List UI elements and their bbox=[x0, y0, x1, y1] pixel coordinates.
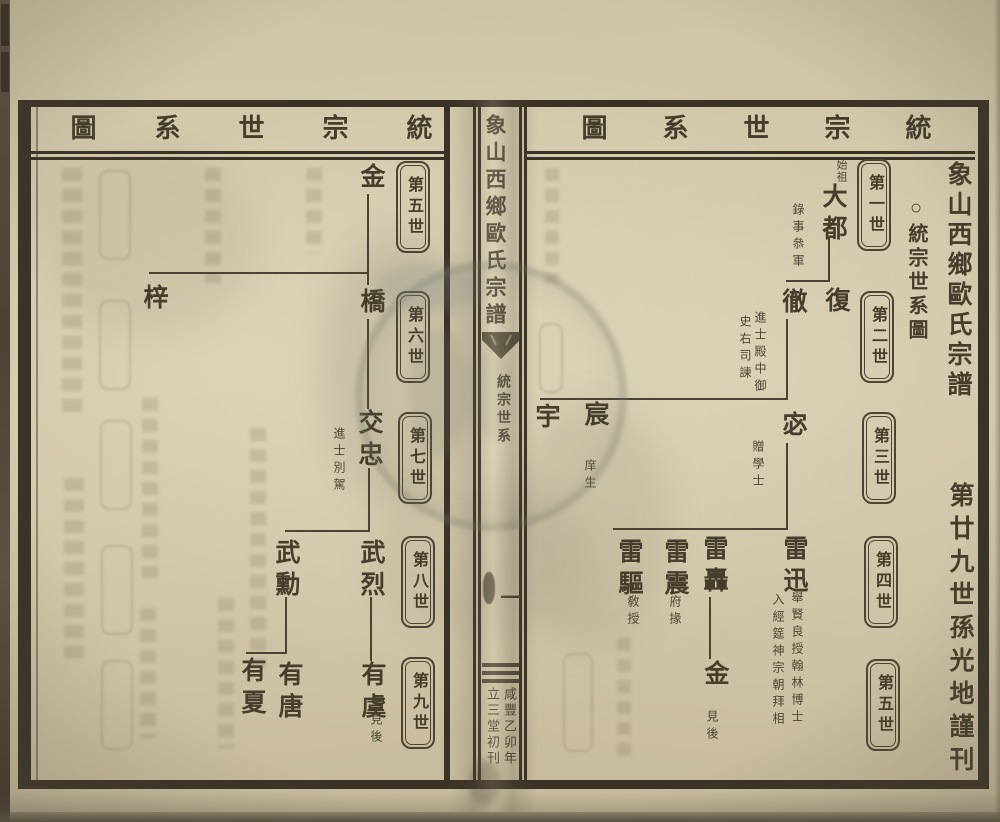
sibling-bracket bbox=[246, 652, 287, 654]
generation-badge-9-left: 第九世 bbox=[401, 657, 435, 749]
frame-right-border bbox=[978, 100, 989, 789]
generation-badge-5: 第五世 bbox=[866, 659, 900, 751]
photo-left-edge bbox=[0, 0, 10, 822]
person-name-wulie: 武烈 bbox=[352, 539, 388, 603]
photo-right-edge bbox=[994, 0, 1000, 822]
bleedthrough-text-ghost bbox=[218, 598, 234, 748]
fold-colophon-year: 咸豐乙卯年 bbox=[500, 687, 519, 767]
sibling-bracket bbox=[149, 272, 368, 274]
library-stamp-mark bbox=[375, 263, 485, 311]
bleedthrough-text-ghost bbox=[617, 638, 631, 763]
descent-line bbox=[285, 597, 287, 652]
photo-left-edge-clip bbox=[1, 52, 9, 92]
bleedthrough-text-ghost bbox=[142, 398, 158, 578]
fold-separator-bar bbox=[482, 671, 519, 675]
descent-line bbox=[786, 443, 788, 529]
person-name-jin-right: 金 bbox=[696, 660, 732, 692]
photo-bottom-shadow bbox=[0, 792, 1000, 812]
generation-badge-3: 第三世 bbox=[862, 412, 896, 504]
header-rule bbox=[26, 151, 445, 154]
frame-left-inner-line bbox=[36, 107, 38, 780]
person-note-leixun-b: 入經筵神宗朝拜相 bbox=[770, 593, 787, 729]
generation-badge-label: 第二世 bbox=[865, 306, 889, 369]
sibling-bracket bbox=[786, 280, 830, 282]
generation-badge-label: 第一世 bbox=[862, 174, 886, 237]
sibling-bracket bbox=[613, 528, 788, 530]
person-note-leizhen: 府掾 bbox=[667, 595, 684, 629]
frame-top-border bbox=[20, 100, 989, 107]
generation-badge-4: 第四世 bbox=[864, 536, 898, 628]
person-name-dadu: 大都 bbox=[814, 183, 850, 247]
bleedthrough-badge-ghost bbox=[100, 420, 132, 510]
descent-line bbox=[828, 236, 830, 281]
generation-badge-1: 第一世 bbox=[857, 159, 891, 251]
person-name-che: 徹 bbox=[774, 288, 810, 320]
photo-left-edge-clip bbox=[1, 4, 9, 46]
generation-badge-label: 第九世 bbox=[406, 672, 430, 735]
bleedthrough-badge-ghost bbox=[101, 545, 133, 635]
generation-badge-8-left: 第八世 bbox=[401, 536, 435, 628]
person-name-zi: 梓 bbox=[135, 284, 171, 316]
header-rule bbox=[527, 157, 975, 160]
bleedthrough-badge-ghost bbox=[99, 170, 131, 260]
person-name-leiqu: 雷驅 bbox=[610, 538, 646, 602]
person-note-youyu: 見後 bbox=[368, 713, 385, 747]
person-note-jin-right: 見後 bbox=[704, 710, 721, 744]
header-rule bbox=[527, 151, 975, 154]
sibling-bracket bbox=[285, 530, 370, 532]
library-stamp-mark bbox=[468, 348, 513, 438]
library-stamp-mark bbox=[410, 328, 465, 458]
genealogy-scan-spread: 統宗世系圖 統宗世系圖 象山西鄉歐氏宗譜 ○統宗世系圖 第廿九世孫光地謹刊 第一… bbox=[0, 0, 1000, 822]
fold-colophon-hall: 立三堂初刊 bbox=[483, 687, 502, 767]
generation-badge-5-left: 第五世 bbox=[396, 161, 430, 253]
person-note-che-a: 進士殿中御 bbox=[752, 311, 769, 396]
generation-badge-label: 第三世 bbox=[867, 427, 891, 490]
ancestor-label: 始祖 bbox=[833, 159, 849, 183]
bleedthrough-text-ghost bbox=[62, 168, 82, 418]
right-page-subtitle-column: ○統宗世系圖 bbox=[902, 197, 931, 343]
right-page-book-title-column: 象山西鄉歐氏宗譜 bbox=[939, 161, 975, 401]
right-page-publisher-column: 第廿九世孫光地謹刊 bbox=[941, 482, 977, 779]
person-name-jin-left: 金 bbox=[352, 163, 388, 195]
person-note-leiqu: 敎授 bbox=[625, 595, 642, 629]
generation-badge-label: 第五世 bbox=[401, 176, 425, 239]
bleedthrough-text-ghost bbox=[250, 428, 266, 668]
fold-separator-bar bbox=[482, 679, 519, 683]
person-note-che-b: 史右司諫 bbox=[737, 315, 754, 383]
person-name-leizhen: 雷震 bbox=[656, 538, 692, 602]
descent-line bbox=[370, 597, 372, 661]
bleedthrough-text-ghost bbox=[140, 608, 156, 738]
person-name-fu: 復 bbox=[817, 287, 853, 319]
frame-left-border bbox=[18, 100, 31, 789]
person-note-dadu: 錄事叅軍 bbox=[790, 203, 807, 271]
generation-badge-label: 第四世 bbox=[869, 551, 893, 614]
generation-badge-label: 第五世 bbox=[871, 674, 895, 737]
bleedthrough-badge-ghost bbox=[101, 660, 133, 750]
person-name-youxia: 有夏 bbox=[233, 657, 269, 721]
generation-badge-label: 第八世 bbox=[406, 551, 430, 614]
bleedthrough-badge-ghost bbox=[99, 300, 131, 390]
descent-line bbox=[368, 468, 370, 530]
person-name-youtang: 有唐 bbox=[270, 661, 306, 725]
person-name-mi: 宓 bbox=[774, 411, 810, 443]
descent-line bbox=[709, 597, 711, 659]
bleedthrough-text-ghost bbox=[64, 478, 84, 658]
fold-separator-bar bbox=[482, 663, 519, 667]
person-name-leihong: 雷轟 bbox=[695, 535, 731, 599]
right-page-header-title: 統宗世系圖 bbox=[547, 114, 957, 148]
person-note-leixun-a: 舉賢良授翰林博士 bbox=[789, 591, 806, 727]
person-name-wuxun: 武勳 bbox=[267, 539, 303, 603]
bleedthrough-badge-ghost bbox=[563, 653, 593, 752]
left-page-header-title: 統宗世系圖 bbox=[39, 114, 459, 148]
descent-line bbox=[786, 319, 788, 399]
bleedthrough-text-ghost bbox=[306, 168, 322, 253]
person-note-mi: 贈學士 bbox=[750, 440, 767, 491]
bleedthrough-text-ghost bbox=[205, 168, 221, 283]
person-note-jiaozhong: 進士別駕 bbox=[331, 427, 348, 495]
frame-bottom-border bbox=[20, 780, 989, 789]
generation-badge-2: 第二世 bbox=[860, 291, 894, 383]
bleedthrough-text-ghost bbox=[545, 168, 559, 283]
person-name-leixun: 雷迅 bbox=[775, 535, 811, 599]
header-rule bbox=[26, 157, 445, 160]
photo-bottom-edge bbox=[0, 812, 1000, 822]
fold-page-number: 一 bbox=[494, 587, 523, 611]
